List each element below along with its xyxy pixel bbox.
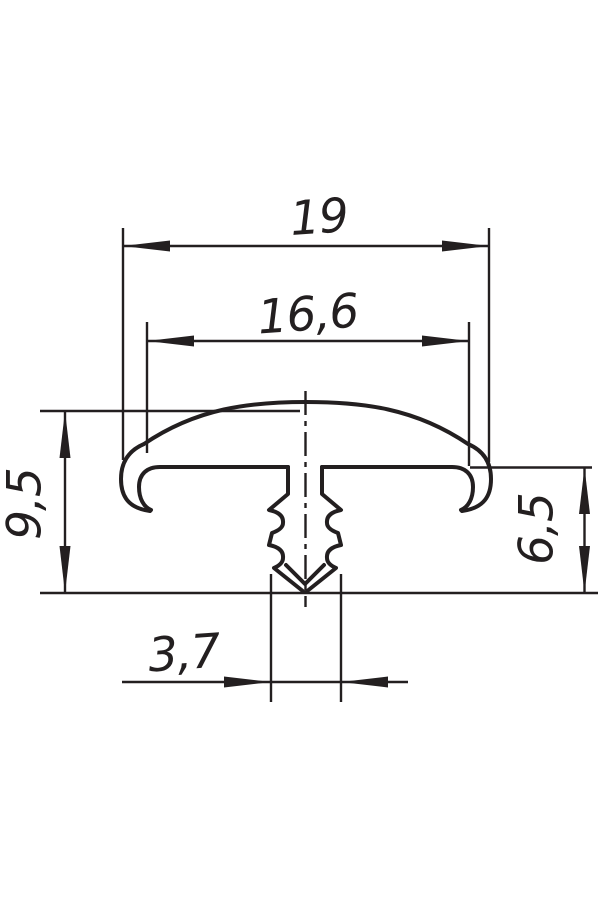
stem-barbed-right-edge [306, 467, 341, 592]
dimension-label-stem-height: 6,5 [510, 493, 565, 565]
t-profile-dimension-drawing: 19 16,6 9,5 6,5 3,7 [0, 0, 600, 900]
arrowhead-bottom [60, 546, 71, 593]
dimension-label-overall-width: 19 [288, 188, 350, 247]
dimension-cap-inner-width: 16,6 [147, 284, 469, 466]
arrowhead-right [442, 241, 489, 252]
arrowhead-left [123, 241, 170, 252]
cap-underside-left-lip [139, 467, 288, 510]
profile-cross-section [121, 391, 491, 607]
cap-underside-right-lip [322, 467, 473, 510]
dimension-label-barb-width: 3,7 [146, 624, 223, 684]
arrowhead-bottom [579, 546, 590, 593]
technical-drawing-page: 19 16,6 9,5 6,5 3,7 [0, 0, 600, 900]
arrowhead-right [422, 336, 469, 347]
arrowhead-left [147, 336, 194, 347]
stem-barbed-left-edge [269, 467, 304, 592]
arrowhead-left [224, 677, 271, 688]
arrowhead-top [60, 411, 71, 458]
dimension-label-cap-inner-width: 16,6 [256, 284, 360, 346]
dimension-label-overall-height: 9,5 [0, 468, 53, 540]
dimension-stem-height: 6,5 [470, 468, 592, 594]
arrowhead-right [341, 677, 388, 688]
arrowhead-top [579, 468, 590, 515]
